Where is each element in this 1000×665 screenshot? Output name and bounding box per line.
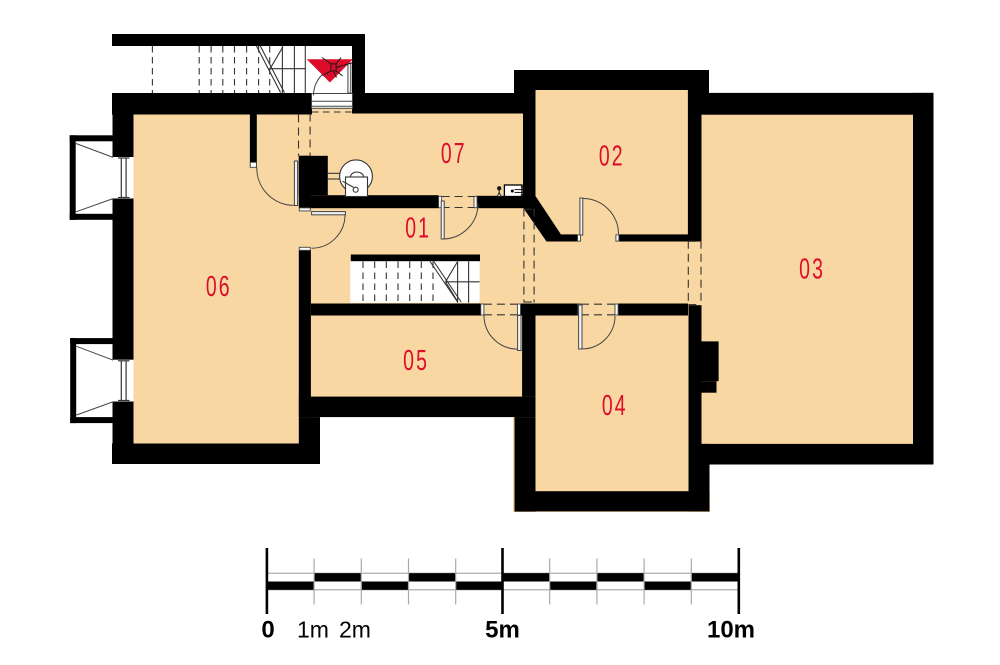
svg-text:02: 02 bbox=[599, 141, 625, 173]
svg-text:05: 05 bbox=[403, 345, 429, 377]
svg-text:0: 0 bbox=[261, 617, 274, 644]
svg-text:5m: 5m bbox=[485, 617, 520, 644]
svg-text:2m: 2m bbox=[339, 617, 371, 643]
svg-text:06: 06 bbox=[206, 271, 232, 303]
svg-text:01: 01 bbox=[405, 213, 431, 245]
svg-text:03: 03 bbox=[799, 254, 825, 286]
svg-text:1m: 1m bbox=[297, 617, 329, 643]
svg-text:07: 07 bbox=[441, 138, 467, 170]
svg-text:10m: 10m bbox=[707, 617, 755, 644]
svg-text:04: 04 bbox=[602, 390, 628, 422]
